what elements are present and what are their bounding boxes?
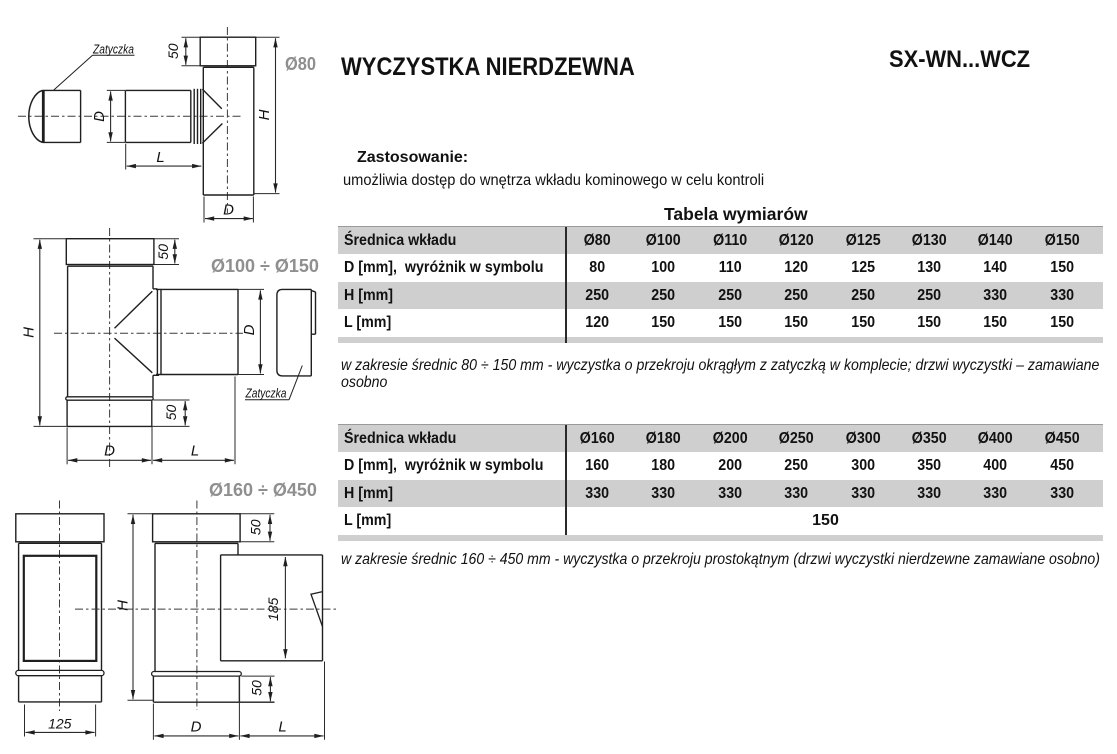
svg-text:H: H: [114, 600, 131, 611]
svg-text:D: D: [223, 202, 234, 219]
svg-text:D: D: [104, 443, 115, 460]
svg-text:H: H: [256, 109, 273, 120]
svg-text:H: H: [20, 327, 37, 338]
svg-text:185: 185: [265, 597, 281, 621]
svg-text:50: 50: [249, 680, 265, 696]
svg-text:D: D: [91, 111, 108, 122]
svg-text:Zatyczka: Zatyczka: [245, 387, 287, 401]
svg-text:L: L: [278, 719, 286, 736]
svg-text:Zatyczka: Zatyczka: [92, 43, 134, 57]
svg-text:50: 50: [165, 43, 181, 59]
svg-text:L: L: [156, 149, 164, 166]
svg-text:D: D: [241, 324, 258, 335]
svg-text:50: 50: [163, 405, 179, 421]
svg-text:50: 50: [155, 244, 171, 260]
svg-text:D: D: [191, 719, 202, 736]
svg-text:125: 125: [48, 716, 72, 732]
svg-text:L: L: [191, 443, 199, 460]
svg-text:50: 50: [248, 519, 264, 535]
